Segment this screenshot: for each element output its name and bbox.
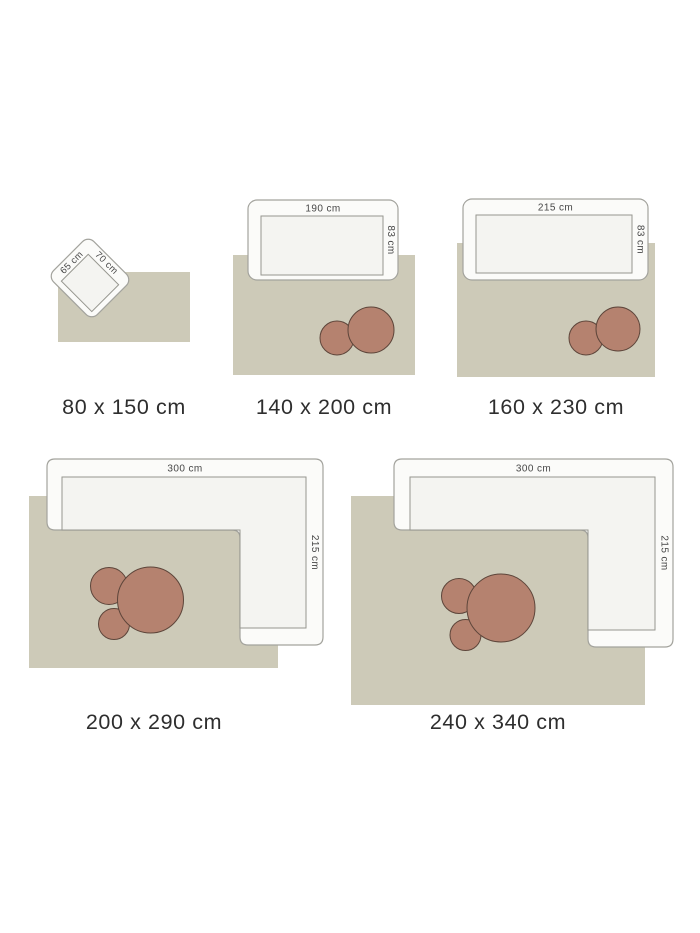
panel-240x340: 300 cm 215 cm 240 x 340 cm: [351, 459, 673, 734]
sofa-seat: [261, 216, 383, 275]
sofa-seat: [476, 215, 632, 273]
sofa-top-view: 190 cm 83 cm: [248, 200, 398, 280]
panel-140x200: 190 cm 83 cm 140 x 200 cm: [233, 200, 415, 419]
panel-160x230: 215 cm 83 cm 160 x 230 cm: [457, 199, 655, 419]
coffee-table-large: [118, 567, 184, 633]
coffee-table-large: [348, 307, 394, 353]
size-caption: 80 x 150 cm: [62, 395, 186, 419]
panel-80x150: 65 cm 70 cm 80 x 150 cm: [48, 236, 190, 419]
size-caption: 140 x 200 cm: [256, 395, 392, 419]
size-caption: 160 x 230 cm: [488, 395, 624, 419]
sofa-width-label: 300 cm: [516, 464, 551, 475]
coffee-table-large: [467, 574, 535, 642]
size-guide-illustration: 65 cm 70 cm 80 x 150 cm 190 cm 83 cm 140…: [0, 0, 700, 933]
sofa-depth-label: 215 cm: [309, 535, 320, 570]
sofa-width-label: 190 cm: [305, 204, 340, 215]
panel-200x290: 300 cm 215 cm 200 x 290 cm: [29, 459, 323, 734]
size-caption: 200 x 290 cm: [86, 710, 222, 734]
coffee-table-large: [596, 307, 640, 351]
sofa-depth-label: 215 cm: [659, 535, 670, 570]
sofa-width-label: 215 cm: [538, 203, 573, 214]
sofa-depth-label: 83 cm: [635, 225, 646, 254]
size-caption: 240 x 340 cm: [430, 710, 566, 734]
sofa-top-view: 215 cm 83 cm: [463, 199, 648, 280]
sofa-width-label: 300 cm: [167, 464, 202, 475]
rug-size-guide: 65 cm 70 cm 80 x 150 cm 190 cm 83 cm 140…: [0, 0, 700, 933]
sofa-depth-label: 83 cm: [385, 225, 396, 254]
